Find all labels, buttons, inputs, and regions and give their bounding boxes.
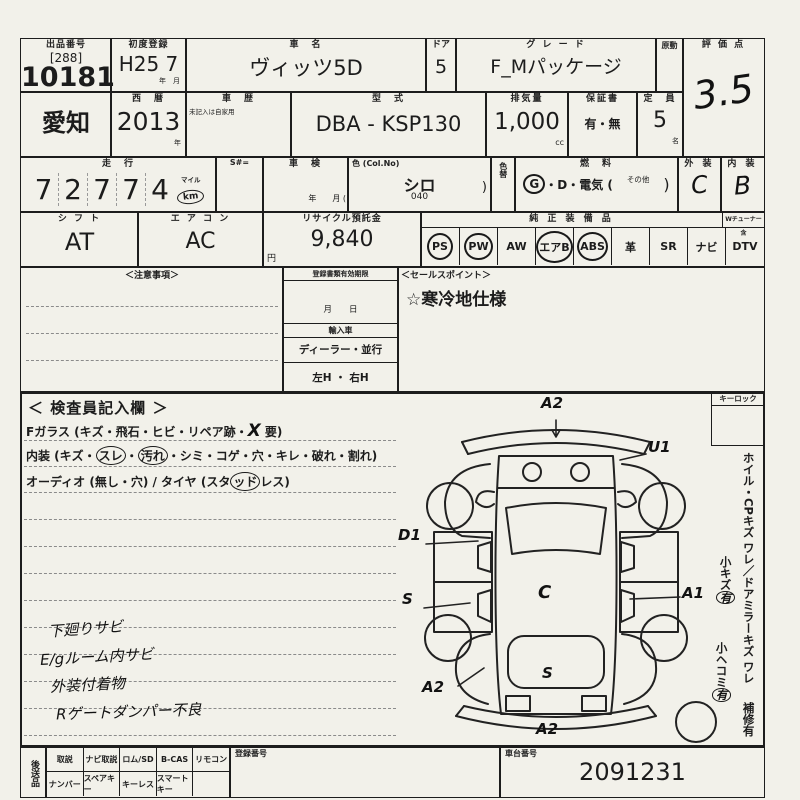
key-lock-box: キーロック [711, 392, 765, 446]
circled-ari: 有 [716, 591, 735, 605]
mileage-header: 走 行 [21, 158, 216, 171]
warranty-box: 保証書 有・無 [567, 92, 638, 157]
color-change-header: 色替 [498, 162, 507, 178]
score-box: 評 価 点 3.5 [682, 38, 765, 157]
displacement-header: 排気量 [486, 93, 568, 106]
door-header: ドア [426, 39, 456, 52]
equip-aw: AW [497, 228, 535, 265]
cell-navi-manual: ナビ取説 [83, 748, 120, 771]
lot-box: 出品番号 [288] 10181 [20, 38, 112, 92]
cell-spare-key: スペアキー [83, 772, 120, 796]
damage-mark: A1 [682, 584, 704, 602]
year-unit: 年 [111, 138, 186, 148]
damage-mark: A2 [422, 678, 444, 696]
sales-point-header: ＜セールスポイント＞ [398, 268, 764, 281]
docs-header: 登録書類有効期限 [283, 268, 398, 281]
exterior-grade-value: C [677, 169, 723, 201]
mileage-digit: 4 [145, 173, 174, 206]
grade-header: グ レ ー ド [456, 39, 656, 52]
equip-leather: 革 [611, 228, 649, 265]
inspector-line [24, 492, 396, 493]
inspector-title: ＜ 検査員記入欄 ＞ [28, 397, 168, 418]
rail-small-dent: 小ヘコミ有 [712, 642, 731, 702]
fuel-gasoline-circled: G [523, 174, 545, 194]
cell-smart-key: スマートキー [156, 772, 193, 796]
grade-box: グ レ ー ド F_Mパッケージ [455, 38, 657, 92]
history-header: 車 歴 [186, 93, 291, 106]
equipment-tuner-header: Wチューナー含 [722, 213, 764, 227]
engine-col-header: 原動 [656, 39, 683, 52]
cell-number-plate: ナンバー [47, 772, 83, 796]
grade-value: F_Mパッケージ [456, 52, 656, 82]
send-items-label: 後送品 [28, 751, 38, 795]
cell-bcas: B-CAS [156, 748, 193, 771]
stamp-circle [676, 702, 716, 742]
glass-x-mark: X [248, 421, 261, 441]
displacement-unit: cc [486, 138, 568, 147]
color-change-box: 色替 [490, 157, 516, 212]
recycle-unit: 円 [267, 251, 276, 264]
model-code-header: 型 式 [291, 93, 486, 106]
mileage-digit: 7 [87, 173, 116, 206]
lot-number: 10181 [21, 64, 111, 91]
first-registration-value: H25 7 [111, 52, 186, 76]
circled-yogore: 汚れ [138, 446, 168, 465]
damage-mark: A2 [536, 720, 558, 738]
damage-mark: C [538, 582, 551, 603]
car-diagram: A2 U1 D1 S C A1 A2 S A2 [398, 396, 718, 744]
equipment-box: 純 正 装 備 品 Wチューナー含 PS PW AW エアB ABS 革 SR … [420, 212, 765, 267]
rail-repair-note: 補修有 [742, 702, 755, 737]
recycle-value: 9,840 [263, 226, 421, 254]
cell-remote: リモコン [192, 748, 229, 771]
exterior-box: 外 装 C [677, 157, 722, 212]
aircon-header: エ ア コ ン [138, 213, 263, 226]
inspector-line [24, 440, 396, 441]
inspector-audio-line: オーディオ (無し・穴) / タイヤ (スタッドレス) [26, 472, 290, 491]
damage-mark: S [542, 664, 553, 682]
car-name-box: 車 名 ヴィッツ5D [185, 38, 427, 92]
recycle-box: リサイクル預託金 9,840 円 [262, 212, 422, 267]
shift-box: シ フ ト AT [20, 212, 139, 267]
capacity-unit: 名 [637, 136, 683, 146]
interior-grade-value: B [720, 170, 765, 202]
color-box: 色 (Col.No) シロ 040 ) [347, 157, 492, 212]
equipment-header: 純 正 装 備 品 [421, 213, 722, 227]
warranty-value: 有・無 [568, 106, 637, 142]
shaken-units: 年 月 ( [263, 193, 348, 204]
inspector-line [24, 519, 396, 520]
registration-number-box: 登録番号 [230, 747, 500, 798]
damage-mark: S [402, 590, 413, 608]
sales-point-box: ＜セールスポイント＞ ☆寒冷地仕様 [397, 267, 765, 392]
fuel-options: ・D・電気 ( [545, 176, 613, 193]
damage-mark: U1 [648, 438, 671, 456]
equip-ps: PS [421, 228, 459, 265]
equip-airbag: エアB [535, 228, 573, 265]
history-box: 車 歴 未記入は自家用 [185, 92, 292, 157]
first-registration-header: 初度登録 [111, 39, 186, 52]
cell-empty [192, 772, 229, 796]
mileage-unit-top: マイル [177, 174, 204, 184]
docs-import-row: ディーラー・並行 [283, 338, 398, 363]
docs-handle-row: 左H ・ 右H [283, 363, 398, 393]
color-header: 色 (Col.No) [348, 158, 491, 169]
model-code-box: 型 式 DBA - KSP130 [290, 92, 487, 157]
circled-ari: 有 [712, 688, 731, 702]
inspector-line [24, 466, 396, 467]
notice-line [26, 333, 278, 334]
capacity-box: 定 員 5 名 [636, 92, 684, 157]
docs-box: 登録書類有効期限 月 日 輸入車 ディーラー・並行 左H ・ 右H [282, 267, 399, 392]
prefecture-value: 愛知 [21, 93, 111, 153]
cell-rom-sd: ロム/SD [119, 748, 156, 771]
notice-line [26, 360, 278, 361]
door-box: ドア 5 [425, 38, 457, 92]
inspector-line [24, 573, 396, 574]
fuel-header: 燃 料 [515, 158, 678, 171]
auction-sheet: { "colors":{"paper":"#f2f1ea","ink":"#1c… [0, 0, 800, 800]
engine-col-box: 原動 [655, 38, 684, 92]
year-value: 2013 [111, 106, 186, 138]
aircon-box: エ ア コ ン AC [137, 212, 264, 267]
key-lock-header: キーロック [712, 393, 764, 406]
notice-line [26, 306, 278, 307]
mileage-digit: 2 [58, 173, 87, 206]
shift-header: シ フ ト [21, 213, 138, 226]
inspector-glass-line: Fガラス (キズ・飛石・ヒビ・リペア跡・X 要) [26, 421, 282, 441]
score-header: 評 価 点 [683, 39, 764, 52]
cell-manual: 取説 [47, 748, 83, 771]
equip-navi: ナビ [687, 228, 725, 265]
year-header: 西 暦 [111, 93, 186, 106]
docs-date-units: 月 日 [283, 303, 398, 315]
notice-box: ＜注意事項＞ [20, 267, 284, 392]
year-box: 西 暦 2013 年 [110, 92, 187, 157]
inspector-note: 外装付着物 [50, 672, 126, 697]
notice-header: ＜注意事項＞ [21, 268, 283, 281]
circled-sure: スレ [96, 446, 126, 465]
equip-sr: SR [649, 228, 687, 265]
first-registration-units: 年 月 [111, 76, 186, 86]
fuel-close-paren: ) [663, 175, 669, 194]
displacement-box: 排気量 1,000 cc [485, 92, 569, 157]
color-paren: ) [482, 180, 487, 195]
inspector-interior-line: 内装 (キズ・スレ・汚れ・シミ・コゲ・穴・キレ・破れ・割れ) [26, 446, 377, 465]
circled-studless: ッド [230, 472, 260, 491]
fuel-other-label: その他 [627, 174, 650, 185]
car-name-value: ヴィッツ5D [186, 52, 426, 84]
fuel-box: 燃 料 G ・D・電気 ( その他 ) [514, 157, 679, 212]
accessories-grid: 取説 ナビ取説 ロム/SD B-CAS リモコン ナンバー スペアキー キーレス… [46, 747, 230, 798]
inspector-line [24, 600, 396, 601]
registration-number-header: 登録番号 [231, 748, 499, 759]
mileage-digit: 7 [116, 173, 145, 206]
mileage-box: 走 行 7 2 7 7 4 マイル km [20, 157, 217, 212]
chassis-number-value: 2091231 [501, 759, 764, 785]
recycle-header: リサイクル預託金 [263, 213, 421, 226]
send-items-box: 後送品 [20, 747, 46, 798]
door-value: 5 [426, 52, 456, 82]
serial-header: S#= [216, 158, 263, 167]
chassis-number-box: 車台番号 2091231 [500, 747, 765, 798]
rail-wheel-note: ホイル・CPキズ ワレ／ドアミラーキズ ワレ [742, 452, 755, 712]
mileage-digit: 7 [29, 173, 58, 206]
sales-point-value: ☆寒冷地仕様 [398, 281, 764, 310]
docs-import-header: 輸入車 [283, 323, 398, 338]
mileage-km-badge: km [176, 189, 205, 206]
inspector-line [24, 735, 396, 736]
warranty-header: 保証書 [568, 93, 637, 106]
first-registration-box: 初度登録 H25 7 年 月 [110, 38, 187, 92]
aircon-value: AC [138, 226, 263, 258]
shift-value: AT [21, 226, 138, 258]
serial-box: S#= [215, 157, 264, 212]
shaken-header: 車 検 [263, 158, 348, 171]
car-name-header: 車 名 [186, 39, 426, 52]
model-code-value: DBA - KSP130 [291, 106, 486, 142]
equip-pw: PW [459, 228, 497, 265]
equip-dtv: DTV [725, 228, 764, 265]
score-value: 3.5 [680, 65, 766, 120]
rail-small-scratch: 小キズ有 [716, 556, 735, 604]
equip-abs: ABS [573, 228, 611, 265]
damage-mark: A2 [541, 394, 563, 412]
color-code: 040 [348, 192, 491, 202]
prefecture-box: 愛知 [20, 92, 112, 157]
shaken-box: 車 検 年 月 ( [262, 157, 349, 212]
interior-box: 内 装 B [720, 157, 765, 212]
displacement-value: 1,000 [486, 106, 568, 138]
capacity-value: 5 [637, 106, 683, 136]
damage-mark: D1 [398, 526, 421, 544]
history-note: 未記入は自家用 [186, 106, 291, 116]
capacity-header: 定 員 [637, 93, 683, 106]
inspector-line [24, 546, 396, 547]
cell-keyless: キーレス [119, 772, 156, 796]
